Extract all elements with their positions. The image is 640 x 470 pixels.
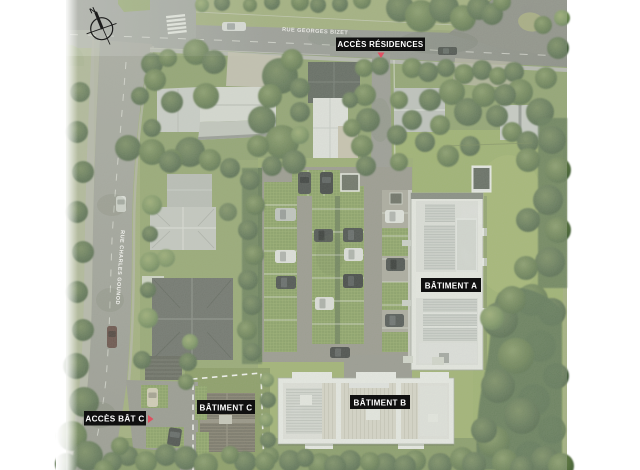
svg-text:ACCÈS BÂT C: ACCÈS BÂT C xyxy=(85,412,144,423)
svg-text:BÂTIMENT B: BÂTIMENT B xyxy=(354,398,407,407)
svg-text:BÂTIMENT A: BÂTIMENT A xyxy=(425,281,478,290)
svg-text:ACCÈS RÉSIDENCES: ACCÈS RÉSIDENCES xyxy=(338,40,424,49)
svg-text:BÂTIMENT C: BÂTIMENT C xyxy=(200,403,253,412)
